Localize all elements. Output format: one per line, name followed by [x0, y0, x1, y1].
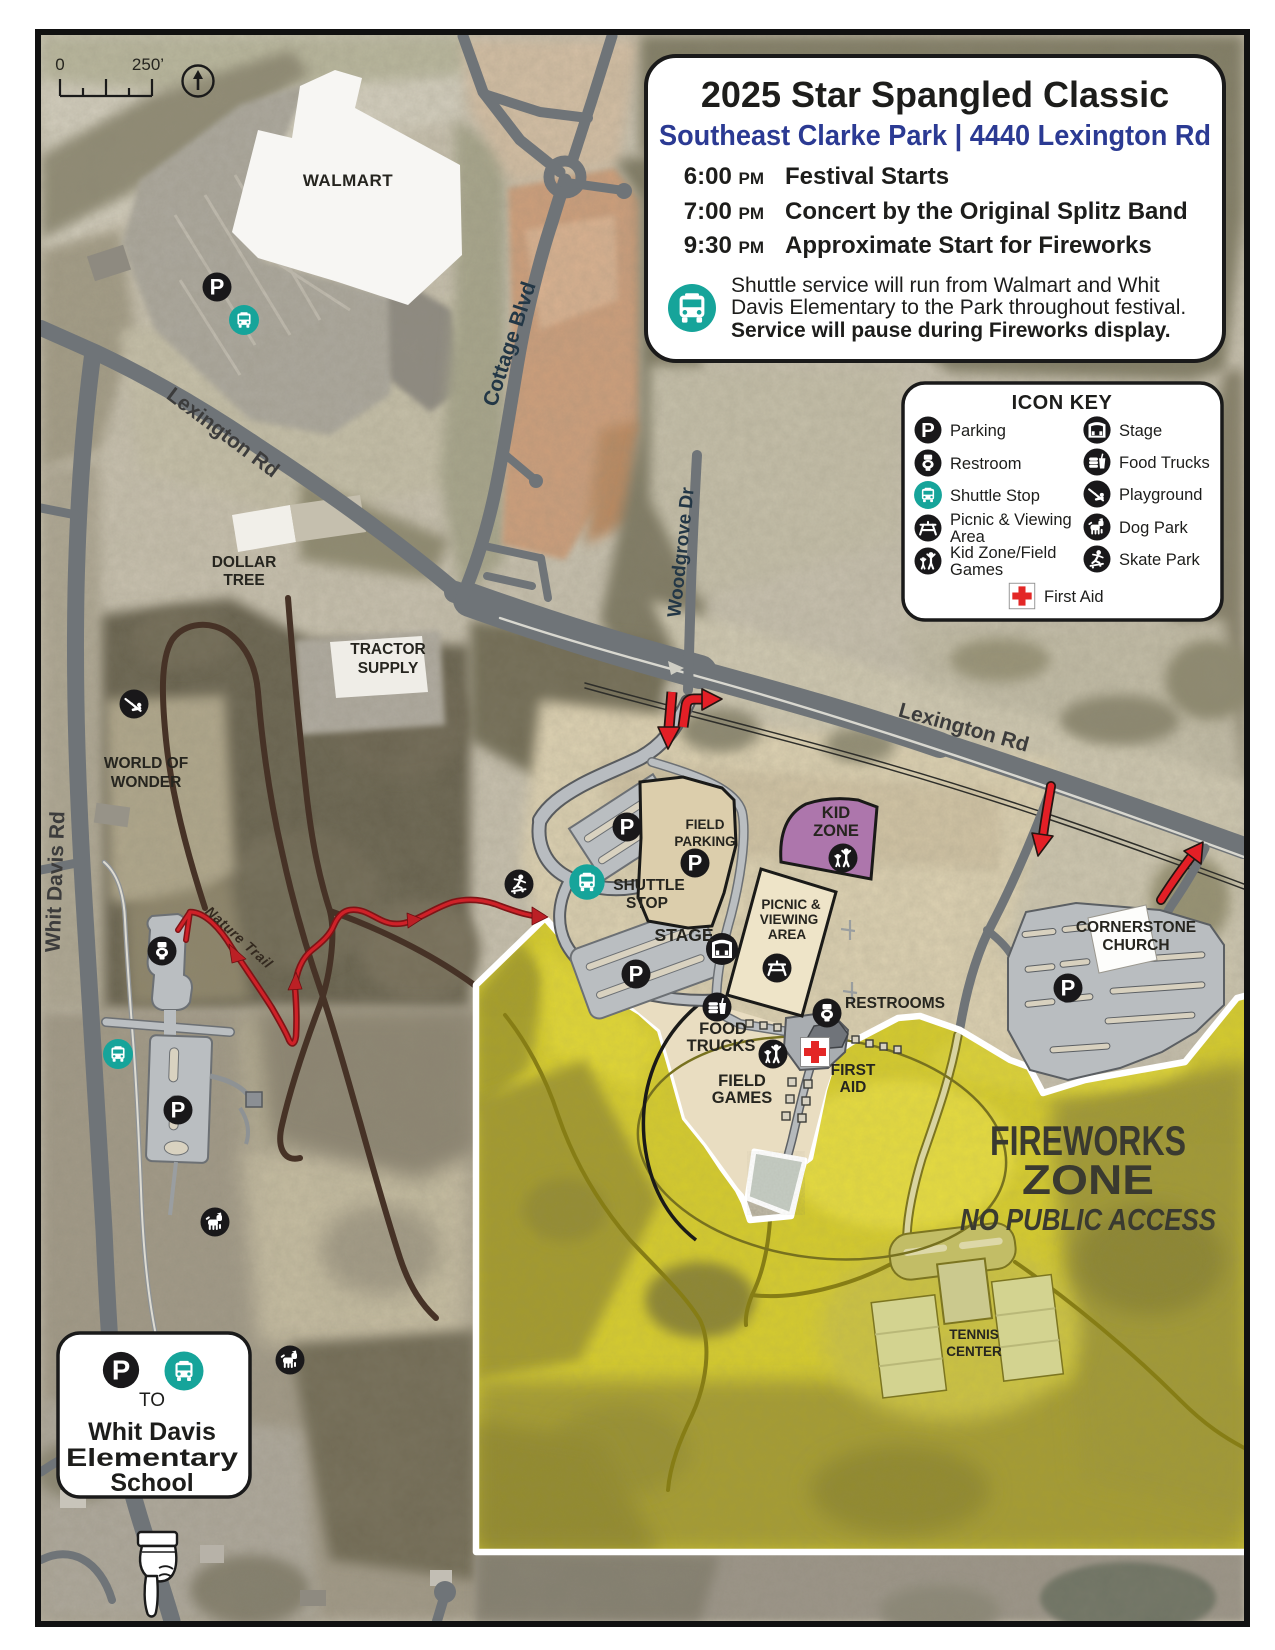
svg-text:VIEWING: VIEWING: [760, 912, 819, 927]
svg-text:250’: 250’: [132, 55, 164, 74]
svg-text:WORLD OF: WORLD OF: [104, 755, 188, 772]
svg-text:CORNERSTONE: CORNERSTONE: [1076, 919, 1196, 936]
svg-text:2025 Star Spangled Classic: 2025 Star Spangled Classic: [701, 74, 1169, 115]
svg-text:KID: KID: [822, 804, 851, 822]
svg-text:DOLLAR: DOLLAR: [212, 554, 277, 571]
svg-text:Games: Games: [950, 561, 1003, 579]
svg-text:FIELD: FIELD: [686, 817, 725, 832]
svg-text:ZONE: ZONE: [813, 822, 859, 840]
svg-text:Elementary: Elementary: [66, 1444, 238, 1472]
svg-text:FIELD: FIELD: [718, 1072, 766, 1090]
svg-text:Approximate Start for Firework: Approximate Start for Fireworks: [785, 232, 1152, 259]
svg-text:Kid Zone/Field: Kid Zone/Field: [950, 544, 1056, 562]
svg-text:WONDER: WONDER: [111, 774, 182, 791]
svg-text:PARKING: PARKING: [674, 834, 735, 849]
svg-text:Whit Davis: Whit Davis: [88, 1418, 216, 1446]
svg-text:TREE: TREE: [223, 572, 264, 589]
svg-text:STOP: STOP: [626, 895, 668, 912]
svg-text:Southeast Clarke Park | 4440 L: Southeast Clarke Park | 4440 Lexington R…: [659, 120, 1211, 152]
svg-text:ZONE: ZONE: [1022, 1156, 1154, 1203]
svg-text:ICON KEY: ICON KEY: [1012, 392, 1113, 414]
svg-text:Whit Davis Rd: Whit Davis Rd: [42, 811, 70, 953]
svg-text:Playground: Playground: [1119, 486, 1202, 504]
svg-text:Food Trucks: Food Trucks: [1119, 454, 1210, 472]
svg-text:Parking: Parking: [950, 422, 1006, 440]
svg-text:FIRST: FIRST: [831, 1062, 876, 1079]
svg-text:GAMES: GAMES: [712, 1089, 773, 1107]
svg-text:CENTER: CENTER: [946, 1344, 1002, 1359]
svg-text:Concert by the Original Splitz: Concert by the Original Splitz Band: [785, 198, 1188, 225]
svg-text:Service will pause during Fire: Service will pause during Fireworks disp…: [731, 319, 1171, 342]
svg-text:Davis Elementary to the Park t: Davis Elementary to the Park throughout …: [731, 296, 1186, 319]
svg-text:TO: TO: [139, 1390, 165, 1411]
svg-text:Shuttle service will run from: Shuttle service will run from Walmart an…: [731, 274, 1160, 297]
svg-text:0: 0: [55, 55, 64, 74]
svg-text:WALMART: WALMART: [303, 171, 393, 190]
svg-text:FOOD: FOOD: [699, 1020, 747, 1038]
svg-text:STAGE: STAGE: [655, 925, 714, 945]
svg-text:Restroom: Restroom: [950, 455, 1022, 473]
svg-text:Skate Park: Skate Park: [1119, 551, 1200, 569]
svg-text:TENNIS: TENNIS: [949, 1327, 999, 1342]
svg-text:Festival Starts: Festival Starts: [785, 163, 949, 190]
svg-text:AID: AID: [840, 1079, 867, 1096]
svg-text:Picnic & Viewing: Picnic & Viewing: [950, 511, 1072, 529]
svg-text:NO PUBLIC ACCESS: NO PUBLIC ACCESS: [960, 1202, 1216, 1237]
svg-text:CHURCH: CHURCH: [1102, 937, 1169, 954]
svg-text:Dog Park: Dog Park: [1119, 519, 1189, 537]
svg-text:PICNIC &: PICNIC &: [761, 897, 821, 912]
svg-text:SHUTTLE: SHUTTLE: [613, 877, 684, 894]
svg-text:Shuttle Stop: Shuttle Stop: [950, 487, 1040, 505]
svg-text:TRACTOR: TRACTOR: [350, 641, 426, 658]
svg-text:AREA: AREA: [768, 927, 807, 942]
svg-text:First Aid: First Aid: [1044, 588, 1104, 606]
svg-text:TRUCKS: TRUCKS: [687, 1037, 756, 1055]
svg-text:School: School: [110, 1469, 193, 1497]
svg-text:SUPPLY: SUPPLY: [358, 660, 419, 677]
svg-text:Stage: Stage: [1119, 422, 1162, 440]
svg-text:RESTROOMS: RESTROOMS: [845, 995, 945, 1012]
